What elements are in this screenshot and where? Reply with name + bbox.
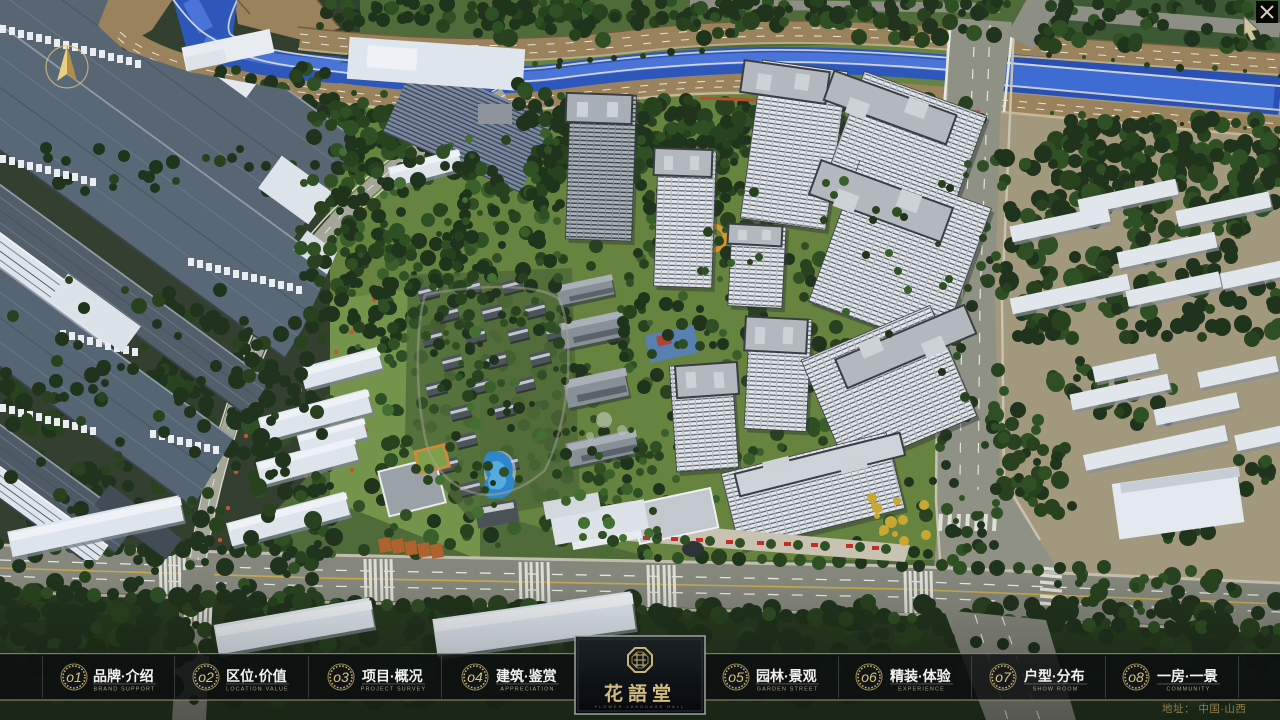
svg-text:花語堂: 花語堂 [604,682,676,705]
svg-text:GARDEN STREET: GARDEN STREET [757,687,818,693]
svg-text:SHOW ROOM: SHOW ROOM [1033,687,1079,693]
svg-text:PROJECT SURVEY: PROJECT SURVEY [361,687,426,693]
svg-text:精装·体验: 精装·体验 [890,668,952,684]
svg-text:区位·价值: 区位·价值 [226,668,287,684]
svg-text:o2: o2 [198,669,214,685]
svg-text:BRAND SUPPORT: BRAND SUPPORT [94,687,156,693]
svg-text:EXPERIENCE: EXPERIENCE [898,687,945,693]
svg-text:建筑·鉴赏: 建筑·鉴赏 [496,668,557,684]
svg-text:o6: o6 [861,669,877,685]
svg-text:APPRECIATION: APPRECIATION [500,687,554,693]
svg-text:o5: o5 [728,669,744,685]
svg-text:COMMUNITY: COMMUNITY [1166,687,1210,693]
svg-text:一房·一景: 一房·一景 [1157,668,1218,684]
svg-text:FLOWER LANGUAGE HALL: FLOWER LANGUAGE HALL [595,705,685,709]
svg-text:园林·景观: 园林·景观 [756,668,817,684]
svg-text:户型·分布: 户型·分布 [1024,668,1085,684]
svg-text:o1: o1 [66,669,82,685]
svg-text:o7: o7 [995,669,1012,685]
svg-text:地址： 中国·山西: 地址： 中国·山西 [1162,702,1246,715]
svg-text:项目·概况: 项目·概况 [362,668,423,684]
svg-text:o4: o4 [467,669,483,685]
svg-text:品牌·介绍: 品牌·介绍 [93,668,154,684]
svg-text:o3: o3 [333,669,349,685]
svg-text:o8: o8 [1128,669,1144,685]
svg-text:LOCATION VALUE: LOCATION VALUE [226,687,289,693]
